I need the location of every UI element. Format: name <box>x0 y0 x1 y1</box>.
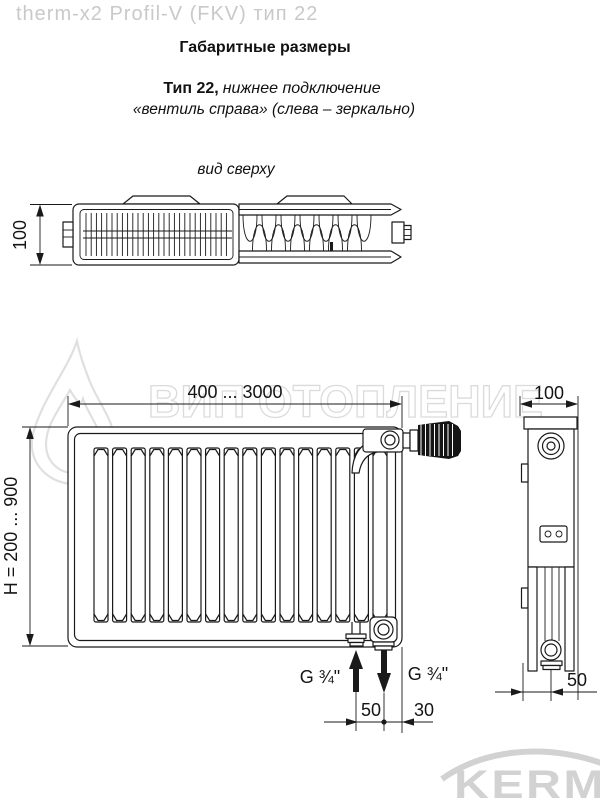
arrow-right-icon <box>511 688 523 695</box>
side-panel-rear <box>565 567 574 671</box>
side-panel-front <box>528 567 537 671</box>
connection-dimension: 50 30 <box>324 700 434 726</box>
arrow-left-icon <box>68 400 80 407</box>
flow-arrow-up-icon <box>349 650 363 669</box>
side-bracket-tab-upper <box>522 464 529 482</box>
thread-label-right: G ¾" <box>408 664 448 684</box>
top-view-label: вид сверху <box>0 161 472 179</box>
front-height-value: H = 200 ... 900 <box>1 477 21 596</box>
side-depth-value: 100 <box>534 383 564 403</box>
conn-spacing-value: 50 <box>361 700 381 720</box>
side-bottom-connection <box>541 640 561 660</box>
top-view-convector-fins <box>243 215 371 251</box>
top-view-depth-value: 100 <box>10 220 30 250</box>
side-connection-flange <box>541 661 562 666</box>
flow-arrow-down-icon <box>377 673 391 693</box>
top-view: 100 <box>10 196 411 265</box>
brand-line: therm-x2 Profil-V (FKV) тип 22 <box>16 3 318 26</box>
front-length-value: 400 ... 3000 <box>187 382 282 402</box>
top-view-weld-mark <box>330 242 333 251</box>
side-conn-value: 50 <box>567 670 587 690</box>
top-view-valve-insert <box>392 222 404 243</box>
thread-label-left: G ¾" <box>300 667 340 687</box>
page-title: Габаритные размеры <box>0 39 530 57</box>
kermi-logo-text: KERMI <box>454 763 600 800</box>
top-view-side-tab <box>63 222 73 247</box>
arrow-right-icon <box>566 400 578 407</box>
front-view: 400 ... 3000 H = 200 ... 900 <box>1 382 461 733</box>
arrow-left-icon <box>551 688 563 695</box>
wall-bracket-right <box>277 196 352 204</box>
arrow-left-icon <box>402 718 414 725</box>
flow-arrows <box>349 650 391 693</box>
type-subtitle-line2: «вентиль справа» (слева – зеркально) <box>0 101 548 119</box>
side-view: 100 50 <box>495 383 597 701</box>
valve-nut <box>403 433 410 448</box>
catalog-page: { "header": { "brand_line": "therm-x2 Pr… <box>0 0 600 800</box>
dimension-dot <box>381 719 386 724</box>
type-subtitle: Тип 22,нижнее подключение <box>0 80 544 98</box>
radiator-body <box>68 427 402 647</box>
conn-offset-value: 30 <box>414 700 434 720</box>
arrow-up-icon <box>36 205 44 217</box>
type-subtitle-italic: нижнее подключение <box>223 80 381 97</box>
top-view-panel <box>73 204 239 265</box>
side-top-cap <box>524 417 577 429</box>
type-subtitle-bold: Тип 22, <box>163 80 218 97</box>
arrow-down-icon <box>26 634 34 646</box>
wall-bracket-left <box>123 196 200 204</box>
arrow-down-icon <box>36 253 44 265</box>
left-connection-flange <box>346 634 366 639</box>
kermi-logo: KERMI <box>442 752 600 800</box>
drawing-canvas: ВИП ОТОПЛЕНИЕ 100 <box>0 0 600 800</box>
side-label-plate <box>540 526 567 542</box>
side-bracket-tab-lower <box>522 588 529 608</box>
